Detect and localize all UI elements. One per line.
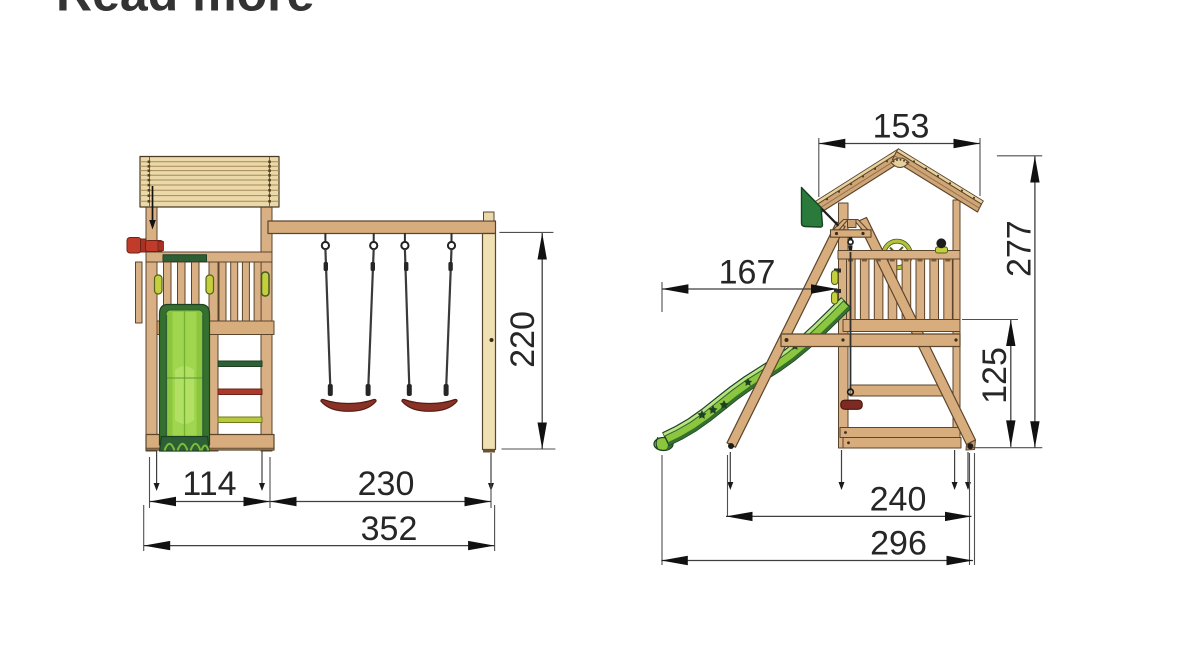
svg-text:277: 277: [1001, 220, 1039, 277]
svg-text:296: 296: [870, 525, 927, 563]
svg-text:125: 125: [976, 347, 1014, 404]
svg-text:220: 220: [504, 311, 542, 368]
svg-text:153: 153: [873, 108, 930, 146]
svg-text:114: 114: [182, 465, 236, 503]
svg-text:230: 230: [358, 465, 415, 503]
svg-text:240: 240: [870, 481, 927, 519]
svg-text:167: 167: [719, 254, 776, 292]
svg-text:352: 352: [361, 510, 418, 548]
svg-text:Read more: Read more: [56, 0, 314, 22]
